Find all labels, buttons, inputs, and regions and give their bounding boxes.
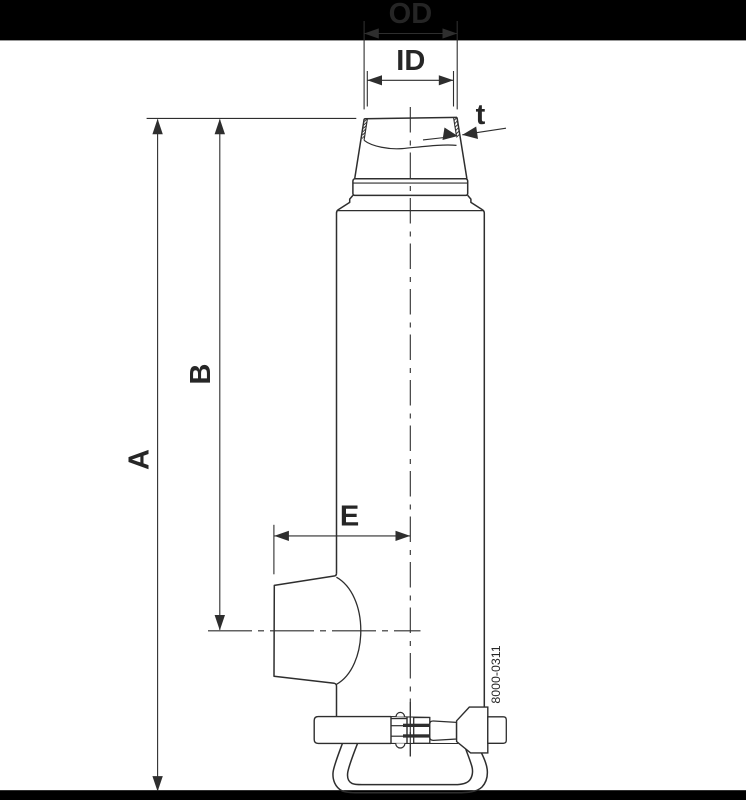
svg-text:OD: OD xyxy=(389,0,433,30)
svg-text:A: A xyxy=(123,449,155,470)
svg-text:8000-0311: 8000-0311 xyxy=(489,645,503,703)
svg-text:ID: ID xyxy=(396,45,425,77)
svg-text:E: E xyxy=(340,500,359,532)
svg-text:B: B xyxy=(185,364,217,385)
svg-text:t: t xyxy=(476,99,486,131)
